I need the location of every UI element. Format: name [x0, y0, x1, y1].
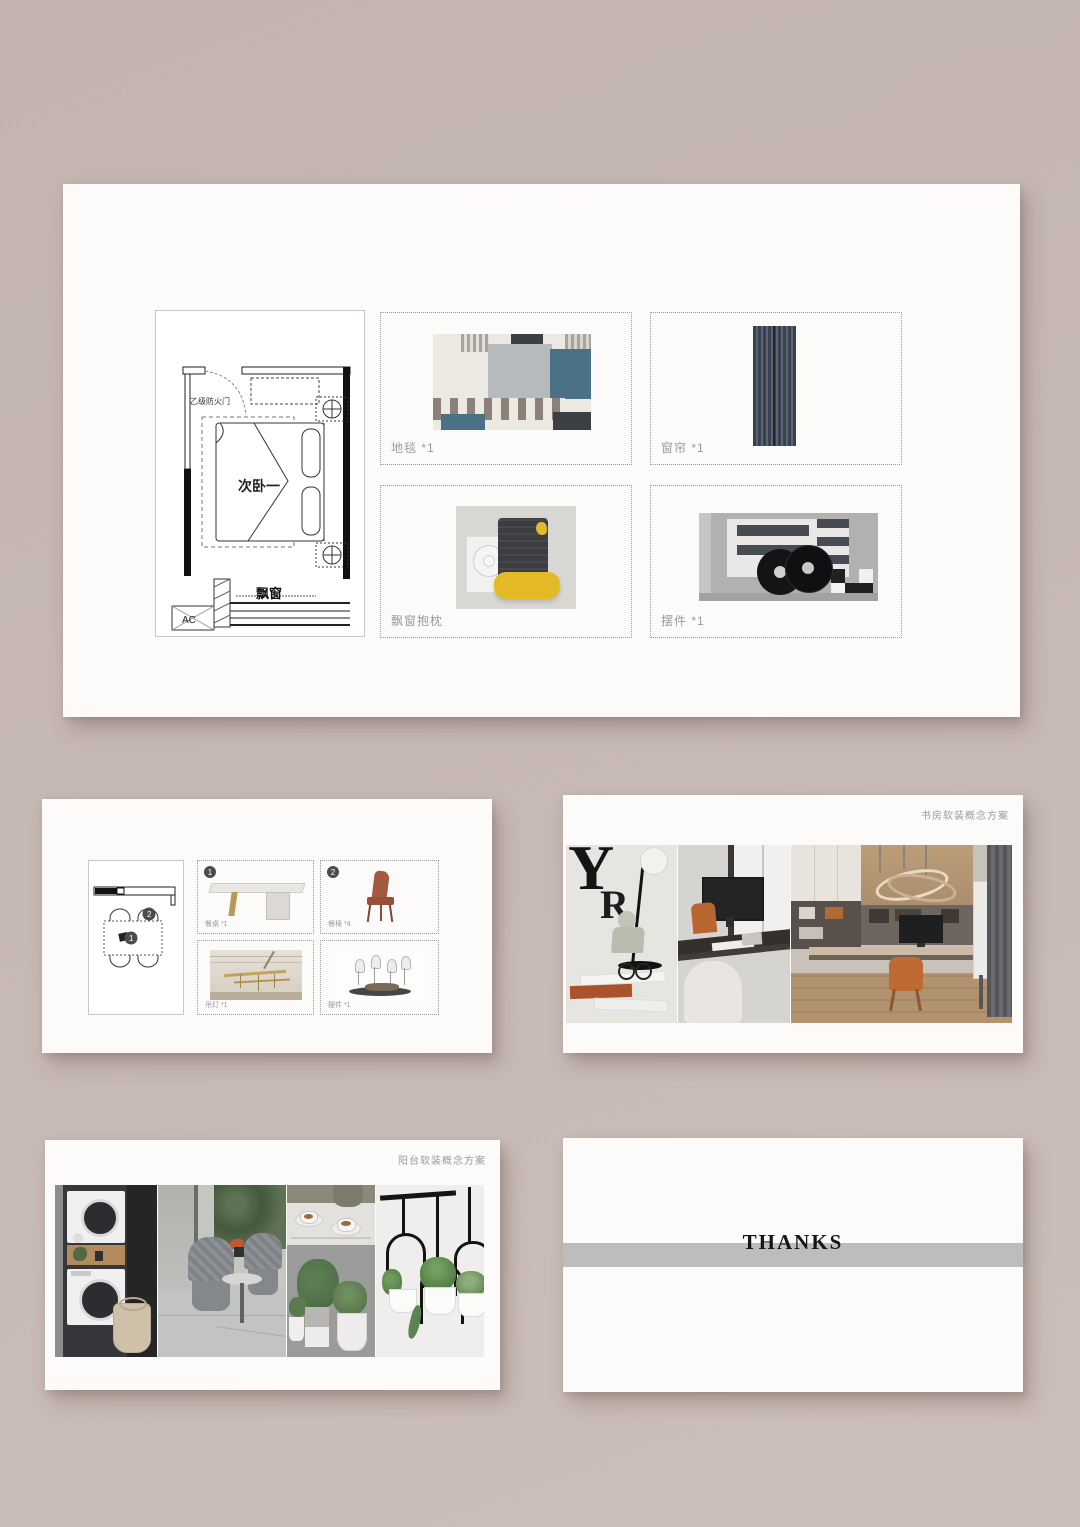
study-slide-title: 书房软装概念方案	[921, 807, 1009, 822]
ornaments-image	[699, 513, 878, 601]
product-box-ornaments: 摆件 *1	[650, 485, 902, 638]
ornaments-label: 摆件 *1	[661, 612, 705, 629]
product-box-dining-table: 1 餐桌 *1	[197, 860, 314, 934]
balcony-photo-laundry	[55, 1185, 157, 1357]
tableware-label: 摆件 *1	[328, 1000, 351, 1010]
carpet-label: 地毯 *1	[391, 439, 435, 456]
product-box-pendant-light: 吊灯 *1	[197, 940, 314, 1015]
study-photo-decor: Y R	[566, 845, 677, 1023]
product-box-curtain: 窗帘 *1	[650, 312, 902, 465]
study-photo-strip: Y R	[566, 845, 1012, 1023]
pendant-light-image	[210, 950, 302, 1000]
balcony-photo-hanging-planters	[376, 1185, 484, 1357]
dining-table-image	[210, 879, 302, 919]
product-box-tableware: 摆件 *1	[320, 940, 439, 1015]
study-photo-room	[791, 845, 1012, 1023]
dining-floorplan: 2 1	[88, 860, 184, 1015]
product-box-carpet: 地毯 *1	[380, 312, 632, 465]
product-box-pillow: 飘窗抱枕	[380, 485, 632, 638]
dining-floorplan-drawing: 2 1	[89, 861, 183, 1014]
plan-badge-2: 2	[147, 910, 152, 919]
study-photo-desk	[678, 845, 790, 1023]
dining-table-label: 餐桌 *1	[205, 919, 228, 929]
pillow-label: 飘窗抱枕	[391, 612, 443, 629]
dining-chair-label: 餐椅 *4	[328, 919, 351, 929]
bedroom-floorplan: AC 乙级防火门 次卧一 飘窗	[155, 310, 365, 637]
plan-badge-1: 1	[129, 934, 134, 943]
ac-label: AC	[182, 615, 196, 626]
item-number-badge: 2	[327, 866, 339, 878]
thanks-title: THANKS	[563, 1230, 1023, 1255]
bay-window-label: 飘窗	[256, 586, 282, 601]
bedroom-floorplan-drawing: AC 乙级防火门 次卧一 飘窗	[156, 311, 364, 636]
slide-study-concept: 书房软装概念方案 Y R	[563, 795, 1023, 1053]
photo-backdrop: AC 乙级防火门 次卧一 飘窗 地毯 *1	[0, 0, 1080, 1527]
item-number-badge: 1	[204, 866, 216, 878]
slide-balcony-concept: 阳台软装概念方案	[45, 1140, 500, 1390]
balcony-slide-title: 阳台软装概念方案	[398, 1152, 486, 1167]
dining-chair-image	[363, 871, 401, 923]
pillow-image	[456, 506, 576, 609]
slide-dining-concept: 2 1 1 餐桌 *1 2 餐椅 *4	[42, 799, 492, 1053]
pendant-light-label: 吊灯 *1	[205, 1000, 228, 1010]
slide-thanks: THANKS	[563, 1138, 1023, 1392]
curtain-label: 窗帘 *1	[661, 439, 705, 456]
fire-door-label: 乙级防火门	[190, 396, 230, 406]
tableware-image	[335, 951, 425, 1001]
product-box-dining-chair: 2 餐椅 *4	[320, 860, 439, 934]
carpet-image	[433, 334, 591, 430]
balcony-photo-strip	[55, 1185, 485, 1357]
room-label: 次卧一	[238, 478, 280, 494]
slide-bedroom-concept: AC 乙级防火门 次卧一 飘窗 地毯 *1	[63, 184, 1020, 717]
curtain-image	[753, 326, 796, 446]
balcony-photo-seating	[158, 1185, 286, 1357]
balcony-photo-dining-plants	[287, 1185, 375, 1357]
